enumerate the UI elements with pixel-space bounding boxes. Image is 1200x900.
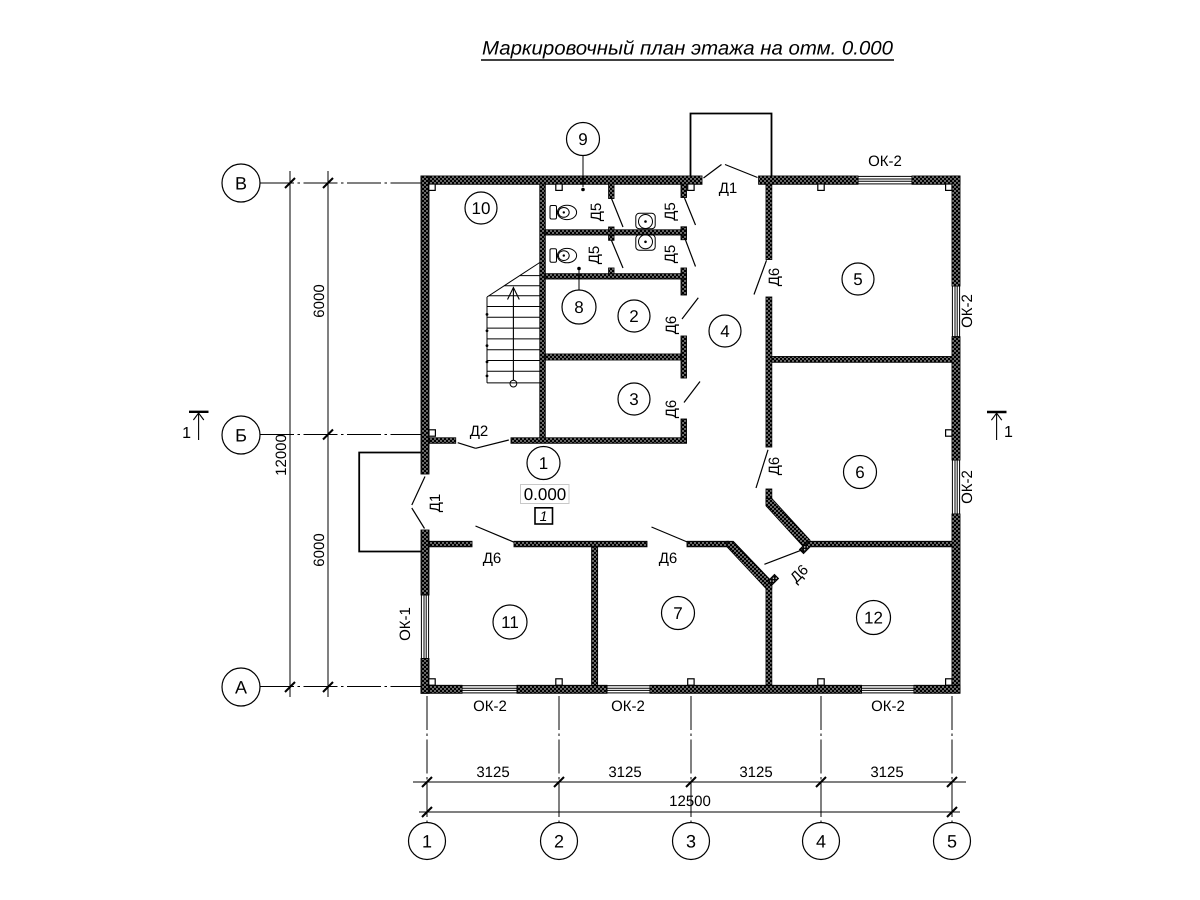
svg-text:3: 3 bbox=[686, 832, 696, 852]
svg-text:ОК-2: ОК-2 bbox=[871, 698, 905, 715]
svg-text:3125: 3125 bbox=[476, 764, 509, 781]
svg-text:Д6: Д6 bbox=[766, 268, 783, 287]
svg-text:2: 2 bbox=[629, 307, 638, 326]
svg-text:Д6: Д6 bbox=[483, 550, 502, 567]
svg-text:Д1: Д1 bbox=[427, 494, 444, 513]
svg-text:Д5: Д5 bbox=[662, 202, 679, 221]
svg-text:Д6: Д6 bbox=[766, 457, 783, 476]
svg-text:9: 9 bbox=[578, 130, 587, 149]
svg-text:3: 3 bbox=[629, 390, 638, 409]
svg-text:5: 5 bbox=[853, 270, 862, 289]
svg-text:0.000: 0.000 bbox=[524, 485, 567, 504]
svg-text:ОК-2: ОК-2 bbox=[959, 470, 976, 504]
svg-text:Д5: Д5 bbox=[662, 245, 679, 264]
svg-text:3125: 3125 bbox=[870, 764, 903, 781]
svg-text:12: 12 bbox=[864, 609, 883, 628]
svg-text:Д1: Д1 bbox=[719, 180, 738, 197]
svg-text:Д2: Д2 bbox=[470, 423, 489, 440]
svg-text:В: В bbox=[235, 174, 247, 194]
svg-text:10: 10 bbox=[472, 199, 491, 218]
svg-text:6000: 6000 bbox=[311, 533, 328, 566]
svg-text:1: 1 bbox=[182, 425, 191, 442]
svg-text:12500: 12500 bbox=[669, 793, 711, 810]
svg-text:3125: 3125 bbox=[608, 764, 641, 781]
svg-text:2: 2 bbox=[554, 832, 564, 852]
svg-text:6000: 6000 bbox=[311, 284, 328, 317]
svg-text:ОК-2: ОК-2 bbox=[473, 698, 507, 715]
svg-text:Д5: Д5 bbox=[588, 203, 605, 222]
svg-text:ОК-1: ОК-1 bbox=[397, 607, 414, 641]
svg-text:Маркировочный план этажа на от: Маркировочный план этажа на отм. 0.000 bbox=[482, 38, 893, 60]
svg-text:А: А bbox=[235, 678, 247, 698]
svg-text:Б: Б bbox=[235, 426, 247, 446]
svg-text:1: 1 bbox=[539, 454, 548, 473]
svg-text:Д5: Д5 bbox=[586, 246, 603, 265]
svg-text:1: 1 bbox=[1004, 424, 1013, 441]
svg-text:Д6: Д6 bbox=[663, 316, 680, 335]
svg-text:4: 4 bbox=[816, 832, 826, 852]
svg-text:1: 1 bbox=[422, 832, 432, 852]
svg-text:ОК-2: ОК-2 bbox=[868, 153, 902, 170]
svg-text:6: 6 bbox=[855, 463, 864, 482]
svg-text:7: 7 bbox=[673, 604, 682, 623]
svg-text:Д6: Д6 bbox=[663, 400, 680, 419]
svg-text:12000: 12000 bbox=[273, 434, 290, 476]
svg-text:ОК-2: ОК-2 bbox=[959, 294, 976, 328]
svg-text:3125: 3125 bbox=[739, 764, 772, 781]
svg-text:4: 4 bbox=[720, 322, 729, 341]
svg-text:1: 1 bbox=[540, 508, 548, 524]
svg-text:8: 8 bbox=[574, 298, 583, 317]
svg-text:11: 11 bbox=[501, 613, 519, 632]
svg-text:Д6: Д6 bbox=[659, 550, 678, 567]
svg-text:5: 5 bbox=[947, 832, 957, 852]
svg-text:ОК-2: ОК-2 bbox=[611, 698, 645, 715]
